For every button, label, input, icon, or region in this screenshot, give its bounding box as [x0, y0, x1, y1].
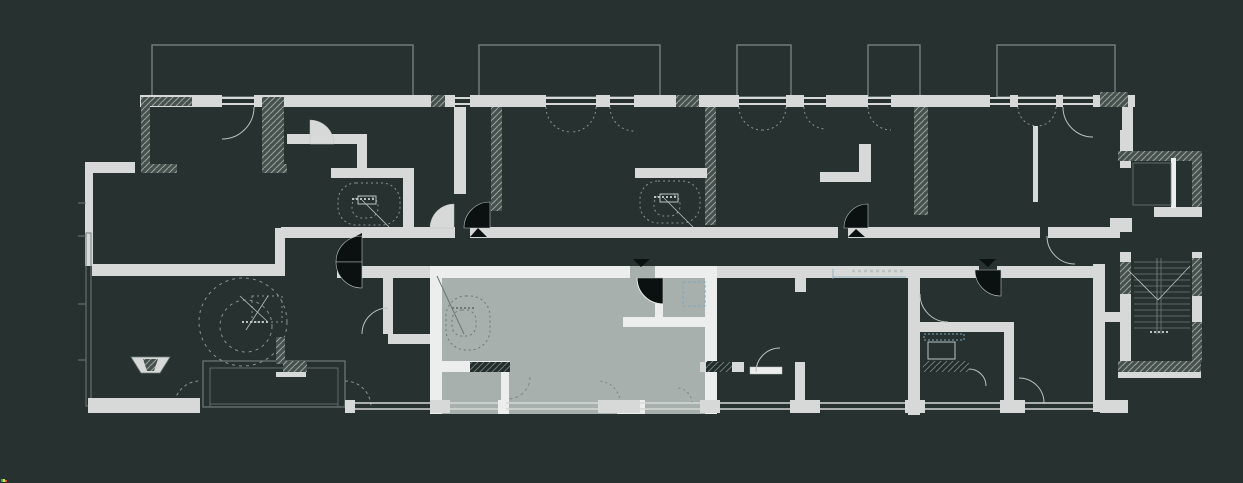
artifact-pixel-blue — [5, 480, 6, 482]
wall — [1103, 312, 1120, 322]
column-hatch — [276, 337, 285, 364]
wall — [700, 400, 720, 413]
wall — [1154, 207, 1202, 217]
wall — [1093, 264, 1105, 412]
unit-wall — [705, 266, 717, 414]
hatched-pier — [431, 95, 445, 107]
window-mullion — [498, 400, 506, 414]
wall — [908, 266, 920, 415]
hatched-wall — [141, 97, 192, 106]
wall — [470, 95, 546, 107]
wall — [454, 107, 466, 194]
wall — [635, 168, 707, 178]
wall — [1033, 126, 1038, 202]
wall — [403, 168, 414, 230]
door-leaf-light — [750, 367, 782, 374]
wall — [905, 400, 925, 413]
wall — [430, 400, 450, 413]
wall — [1100, 400, 1128, 413]
hatched-wall — [262, 97, 284, 172]
column-hatch — [283, 361, 307, 372]
wall — [997, 266, 1093, 278]
wall — [1048, 227, 1120, 238]
wall — [88, 398, 200, 413]
wall — [1110, 218, 1132, 232]
wall — [1056, 95, 1063, 107]
hatched-wall — [914, 107, 928, 215]
wall — [1120, 130, 1131, 168]
hatched-wall — [141, 97, 150, 173]
elevator-rail — [1171, 158, 1176, 208]
wall — [920, 266, 979, 278]
stair-wall-hatch — [1192, 258, 1202, 296]
wall — [383, 278, 393, 334]
hatched-wall — [141, 164, 177, 173]
kitchen-counter-hatch — [470, 362, 510, 372]
wall — [331, 168, 403, 178]
wall — [345, 400, 355, 413]
wall — [92, 264, 277, 276]
artifact-pixel-red — [6, 480, 7, 482]
column-base — [276, 372, 306, 377]
floor-plan-canvas[interactable] — [0, 0, 1243, 483]
floor-plan-viewport — [0, 0, 1243, 483]
wall — [826, 95, 868, 107]
wall — [790, 400, 820, 413]
hatched-wall — [705, 107, 716, 225]
wall — [795, 266, 806, 292]
wall — [357, 144, 367, 170]
wall — [891, 95, 990, 107]
wall — [596, 95, 610, 107]
wall — [1010, 95, 1018, 107]
counter-hatch — [923, 361, 969, 372]
stair-wall-hatch — [1118, 361, 1201, 372]
hatched-pier — [676, 95, 699, 107]
wall — [920, 322, 1014, 332]
hatched-corner — [1100, 92, 1128, 107]
wall — [470, 227, 838, 238]
wall — [1004, 322, 1014, 412]
wall — [717, 266, 908, 278]
artifact-pixel-green — [1, 479, 3, 482]
wall — [598, 400, 640, 413]
wall — [281, 227, 455, 238]
hatched-wall — [491, 107, 502, 211]
wall — [254, 95, 455, 107]
stair-wall-hatch — [1192, 322, 1202, 362]
wall — [848, 227, 1040, 238]
wall — [859, 144, 871, 182]
unit-wall — [430, 266, 442, 414]
selected-unit-area — [430, 266, 717, 414]
unit-wall — [655, 317, 717, 327]
hatched-wall — [262, 164, 287, 173]
wall — [786, 95, 804, 107]
artifact-pixel-yellow — [3, 479, 5, 482]
elevator-wall-hatch — [1118, 151, 1202, 161]
counter-hatch — [706, 362, 732, 372]
wall — [1118, 372, 1201, 378]
stair-wall-hatch — [1120, 262, 1131, 294]
wall — [1000, 400, 1025, 413]
highlighted-unit-fill[interactable] — [430, 266, 717, 414]
wall — [388, 334, 430, 344]
unit-wall — [430, 266, 630, 278]
